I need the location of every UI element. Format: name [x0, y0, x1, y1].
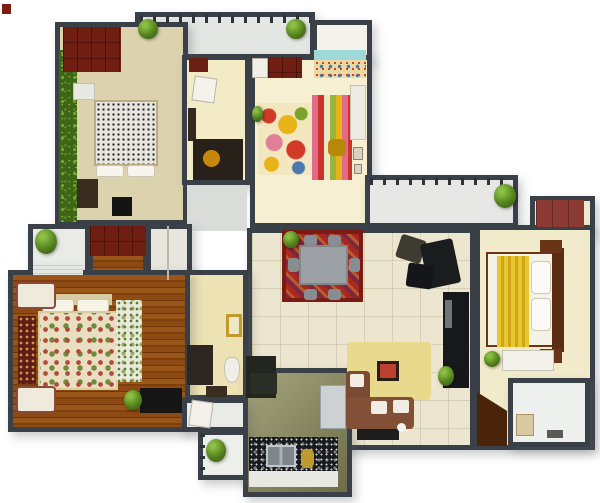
plant-kids-room [252, 106, 263, 122]
balcony-shelf [33, 262, 83, 275]
nightstand [540, 240, 562, 253]
door-leaf [188, 400, 213, 429]
kids-closet [350, 85, 366, 140]
bed-pillow [96, 165, 124, 177]
hedge-strip [59, 50, 77, 222]
coffee-table [357, 429, 399, 440]
balcony-railing [140, 15, 310, 23]
sofa-cushion [350, 374, 364, 387]
wardrobe-right-red [536, 200, 584, 227]
white-desk [73, 83, 95, 100]
bath-vanity [187, 345, 213, 385]
bedside-runner-rug [18, 316, 36, 384]
bed-floral-quilt [38, 311, 118, 390]
fridge [320, 385, 346, 429]
door-leaf [252, 58, 268, 78]
dining-chair [304, 235, 317, 246]
bed-pillow [531, 261, 551, 294]
dining-table [299, 245, 348, 285]
dining-chair [328, 289, 341, 300]
plant-bedroom-right [484, 351, 500, 367]
ottoman [405, 262, 434, 289]
gold-mirror [226, 314, 242, 337]
wall-frame [354, 164, 362, 174]
utility-railing [200, 434, 205, 478]
dark-shelf [188, 108, 196, 141]
dining-chair [288, 258, 299, 272]
toilet [224, 357, 240, 383]
kitchen-cabinet [250, 373, 277, 394]
dining-chair [304, 289, 317, 300]
sofa-cushion [393, 400, 409, 413]
plant-balcony-left [138, 19, 158, 39]
kids-wardrobe [268, 57, 302, 78]
sofa-cushion [371, 401, 387, 414]
plant-balcony-right [286, 19, 306, 39]
floor-plan [0, 0, 600, 503]
bed-yellow-throw [497, 256, 529, 347]
pet-figure [397, 423, 406, 432]
bedroom-bench [502, 350, 554, 371]
red-shelf [189, 58, 208, 72]
mural-sky [314, 50, 366, 60]
armchair [16, 282, 56, 309]
bath-mat [206, 386, 227, 397]
plant-master-bedroom [124, 390, 142, 410]
plant-right-balcony [494, 184, 516, 208]
gold-basket [301, 449, 314, 468]
gold-stool [203, 150, 220, 167]
bed-headboard [552, 248, 564, 352]
tv-console [140, 388, 182, 413]
picture-frame [377, 361, 399, 381]
vanity-box [516, 414, 534, 436]
bed-textured-throw [116, 300, 142, 382]
plant-left-balcony [35, 229, 57, 254]
hallway-corridor [187, 185, 247, 231]
wall-frame [353, 147, 363, 160]
plant-tv-wall [438, 366, 454, 386]
tv-cabinet-shelf [445, 300, 452, 328]
balcony-railing [370, 178, 512, 185]
dresser [77, 179, 98, 208]
kids-rug-circles [258, 103, 312, 175]
toy-basket [328, 139, 346, 156]
plant-utility-balcony [206, 439, 226, 462]
corner-mark [2, 4, 11, 14]
tv-floor-unit [112, 197, 132, 216]
armchair [16, 386, 56, 413]
kitchen-sink [266, 445, 296, 467]
counter-toe-strip [249, 471, 338, 487]
plant-dining-rug [283, 231, 299, 248]
wardrobe-top-left [63, 27, 121, 72]
bed-speckled-duvet [94, 100, 158, 166]
mural-sand [314, 60, 366, 78]
bed-pillow [531, 298, 551, 331]
closet-door-line [167, 226, 169, 280]
dining-chair [349, 258, 360, 272]
dining-chair [328, 235, 341, 246]
bed-pillow [127, 165, 155, 177]
kids-play-unit [312, 95, 352, 180]
master-wardrobe-red [90, 226, 146, 256]
door-leaf [191, 76, 217, 104]
bath-accessories [547, 430, 563, 438]
